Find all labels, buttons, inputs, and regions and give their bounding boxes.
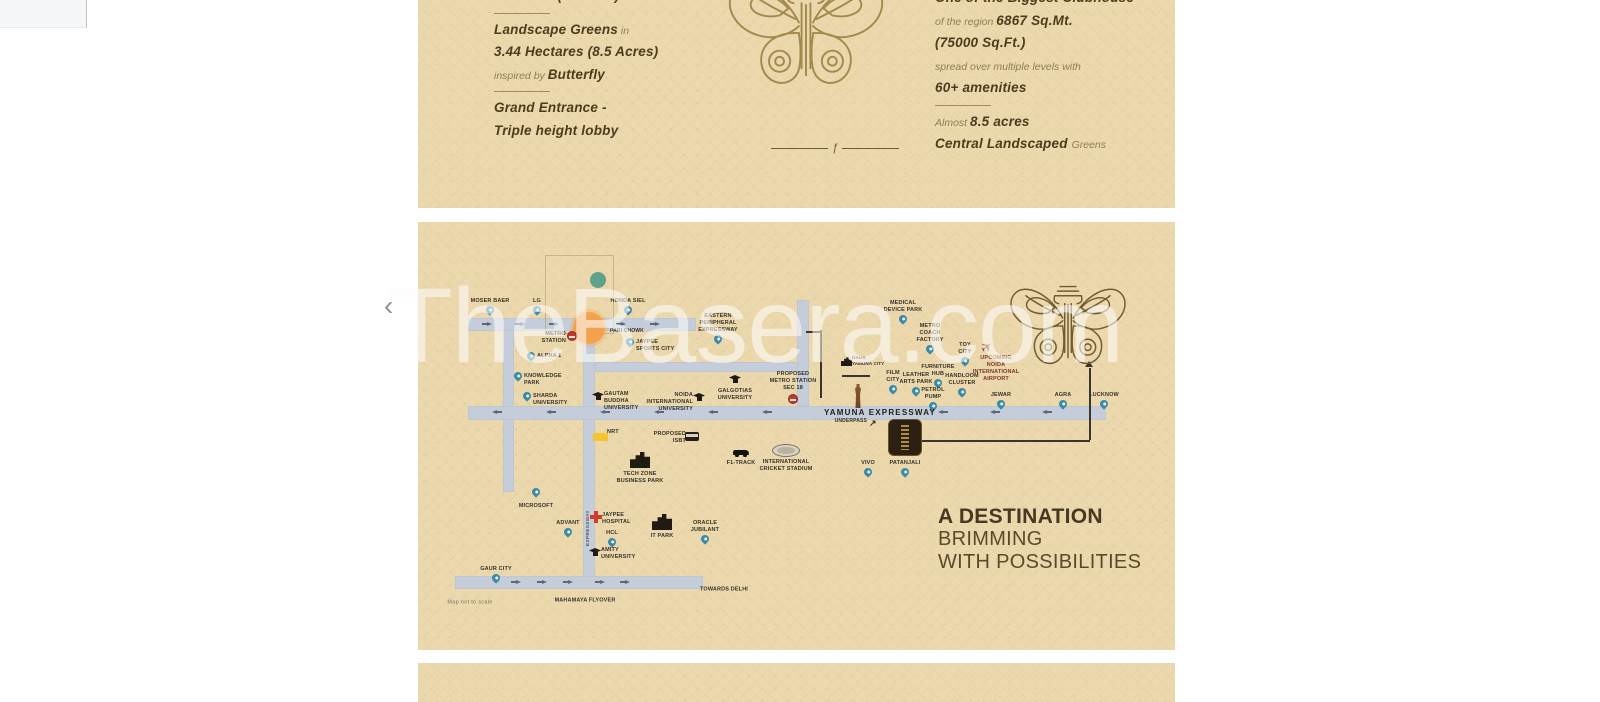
map-marker-label: IT PARK bbox=[651, 533, 674, 540]
map-marker-label: SHARDA UNIVERSITY bbox=[533, 393, 568, 407]
next-section-card bbox=[418, 663, 1175, 702]
map-marker-label: MICROSOFT bbox=[519, 503, 553, 510]
map-marker-icon bbox=[593, 433, 608, 441]
map-marker-label: MEDICAL DEVICE PARK bbox=[884, 300, 923, 314]
map-marker-label: TOY CITY bbox=[958, 342, 971, 356]
map-marker-icon bbox=[590, 511, 602, 523]
map-marker-label: INTERNATIONAL CRICKET STADIUM bbox=[760, 459, 813, 473]
map-marker-label: GALGOTIAS UNIVERSITY bbox=[718, 388, 753, 402]
headline-line-3: WITH POSSIBILITIES bbox=[938, 551, 1141, 574]
map-marker-icon bbox=[729, 375, 741, 385]
map-marker-icon bbox=[772, 444, 800, 457]
map-marker-label: VIVO bbox=[861, 460, 875, 467]
headline-line-1: A DESTINATION bbox=[938, 505, 1141, 528]
map-marker-icon bbox=[869, 419, 879, 429]
map-marker-label: UPCOMING NOIDA INTERNATIONAL AIRPORT bbox=[973, 355, 1019, 384]
map-marker-label: GAUR CITY bbox=[480, 566, 512, 573]
feature-line: spread over multiple levels with bbox=[935, 56, 1165, 76]
headline-line-2: BRIMMING bbox=[938, 528, 1141, 551]
arrow bbox=[516, 580, 521, 584]
feature-line: 60+ amenities bbox=[935, 78, 1165, 98]
brochure-features-card: 7 Towers (Phase 1)Landscape Greens in3.4… bbox=[418, 0, 1175, 208]
map-marker-label: MAHAMAYA FLYOVER bbox=[555, 597, 616, 604]
feature-line: Landscape Greens in bbox=[494, 20, 724, 40]
map-marker-label: ORACLE JUBILANT bbox=[691, 520, 719, 534]
arrow bbox=[655, 322, 660, 326]
feature-divider bbox=[494, 91, 550, 92]
map-marker-icon bbox=[980, 338, 998, 352]
map-marker-label: LG bbox=[533, 298, 541, 305]
map-marker-label: EASTERN PERIPHERAL EXPRESSWAY bbox=[698, 313, 738, 334]
feature-line: One of the Biggest Clubhouse bbox=[935, 0, 1165, 8]
arrow bbox=[546, 410, 551, 414]
arrow bbox=[621, 322, 626, 326]
road-mid-horizontal bbox=[595, 362, 798, 372]
arrow bbox=[487, 322, 492, 326]
listing-page-screenshot: 7 Towers (Phase 1)Landscape Greens in3.4… bbox=[0, 0, 1600, 702]
map-marker-icon bbox=[567, 331, 577, 341]
map-marker-icon bbox=[685, 432, 699, 441]
map-marker-label: PROPOSED ISBT bbox=[654, 431, 686, 445]
map-marker-label: METRO COACH FACTORY bbox=[916, 323, 943, 344]
map-marker-label: YAMUNA EXPRESSWAY bbox=[824, 408, 936, 418]
feature-line: 3.44 Hectares (8.5 Acres) bbox=[494, 42, 724, 62]
map-marker-label: KNOWLEDGE PARK bbox=[524, 373, 562, 387]
map-marker-label: ALPHA 1 bbox=[537, 353, 561, 360]
map-marker-label: LUCKNOW bbox=[1089, 392, 1119, 399]
map-marker-icon bbox=[590, 272, 606, 288]
map-marker-label: PARI CHOWK bbox=[610, 328, 644, 335]
arrow bbox=[568, 580, 573, 584]
feature-line: Almost 8.5 acres bbox=[935, 112, 1165, 132]
feature-divider bbox=[935, 105, 991, 106]
feature-line: of the region 6867 Sq.Mt. bbox=[935, 11, 1165, 31]
map-marker-label: METRO STATION bbox=[542, 331, 566, 345]
carousel-prev-arrow[interactable]: ‹ bbox=[384, 292, 393, 320]
map-marker-label: NRT bbox=[607, 429, 619, 436]
map-marker-label: EXPRESSWAY bbox=[585, 510, 591, 546]
feature-line: 7 Towers (Phase 1) bbox=[494, 0, 724, 6]
ornamental-divider: ƒ bbox=[771, 143, 899, 154]
feature-line: Central Landscaped Greens bbox=[935, 134, 1165, 154]
map-marker-label: PROPOSED METRO STATION SEC 18 bbox=[770, 371, 817, 392]
connector-horizontal bbox=[922, 440, 1090, 442]
feature-line: inspired by Butterfly bbox=[494, 65, 724, 85]
map-marker-icon bbox=[573, 312, 605, 344]
arrow bbox=[708, 410, 713, 414]
map-marker-label: PETROL PUMP bbox=[921, 387, 944, 401]
project-butterfly-logo-icon bbox=[1002, 276, 1134, 388]
features-right: One of the Biggest Clubhouseof the regio… bbox=[935, 0, 1165, 157]
project-location-marker bbox=[888, 419, 922, 456]
feature-line: Triple height lobby bbox=[494, 121, 724, 141]
arrow bbox=[762, 410, 767, 414]
map-marker-label: NOIDA INTERNATIONAL UNIVERSITY bbox=[647, 392, 693, 413]
feature-line: (75000 Sq.Ft.) bbox=[935, 33, 1165, 53]
map-marker-label: HONDA SIEL bbox=[610, 298, 645, 305]
map-marker-label: JAYPEE SPORTS CITY bbox=[636, 339, 674, 353]
browser-edge-artifact bbox=[0, 0, 87, 28]
arrow bbox=[938, 410, 943, 414]
map-marker-label: JAYPEE HOSPITAL bbox=[602, 512, 631, 526]
arrow bbox=[554, 322, 559, 326]
map-marker-icon bbox=[693, 393, 705, 403]
map-marker-label: AMITY UNIVERSITY bbox=[601, 547, 636, 561]
map-marker-label: AGRA bbox=[1055, 392, 1072, 399]
feature-line: Grand Entrance - bbox=[494, 98, 724, 118]
arrow bbox=[1042, 410, 1047, 414]
map-marker-label: JEWAR bbox=[991, 392, 1011, 399]
rail-line-top bbox=[806, 331, 821, 333]
arrow bbox=[625, 580, 630, 584]
map-marker-label: MOSER BAER bbox=[471, 298, 510, 305]
ornament-flourish-icon: ƒ bbox=[828, 143, 842, 154]
map-marker-label: GAUTAM BUDDHA UNIVERSITY bbox=[604, 391, 639, 412]
map-marker-icon bbox=[589, 548, 601, 558]
map-marker-icon bbox=[788, 394, 798, 404]
map-marker-label: ADVANT bbox=[556, 520, 579, 527]
map-marker-icon bbox=[592, 392, 604, 402]
map-marker-label: PATANJALI bbox=[890, 460, 921, 467]
arrow bbox=[542, 580, 547, 584]
road-yamuna-expressway bbox=[468, 406, 1106, 420]
map-marker-label: TECH ZONE BUSINESS PARK bbox=[617, 471, 664, 485]
map-marker-label: FILM CITY bbox=[886, 370, 899, 384]
map-headline: A DESTINATION BRIMMING WITH POSSIBILITIE… bbox=[938, 505, 1141, 574]
feature-divider bbox=[494, 13, 550, 14]
arrow bbox=[520, 322, 525, 326]
rail-line-vertical bbox=[820, 330, 822, 398]
map-marker-label: GAUR YAMUNA CITY bbox=[852, 355, 884, 367]
map-marker-label: LEATHER ARTS PARK bbox=[899, 372, 932, 386]
butterfly-ornament-icon bbox=[718, 0, 894, 116]
arrow bbox=[492, 410, 497, 414]
arrow bbox=[600, 580, 605, 584]
map-marker-label: UNDERPASS bbox=[835, 418, 867, 425]
map-marker-label: Map not to scale bbox=[447, 599, 492, 606]
map-marker-icon bbox=[733, 450, 749, 455]
map-marker-label: F1-TRACK bbox=[727, 460, 756, 467]
map-marker-label: HCL bbox=[606, 530, 618, 537]
rail-line-horizontal bbox=[842, 375, 870, 377]
features-left: 7 Towers (Phase 1)Landscape Greens in3.4… bbox=[494, 0, 724, 143]
arrow bbox=[990, 410, 995, 414]
map-marker-label: TOWARDS DELHI bbox=[700, 586, 748, 593]
